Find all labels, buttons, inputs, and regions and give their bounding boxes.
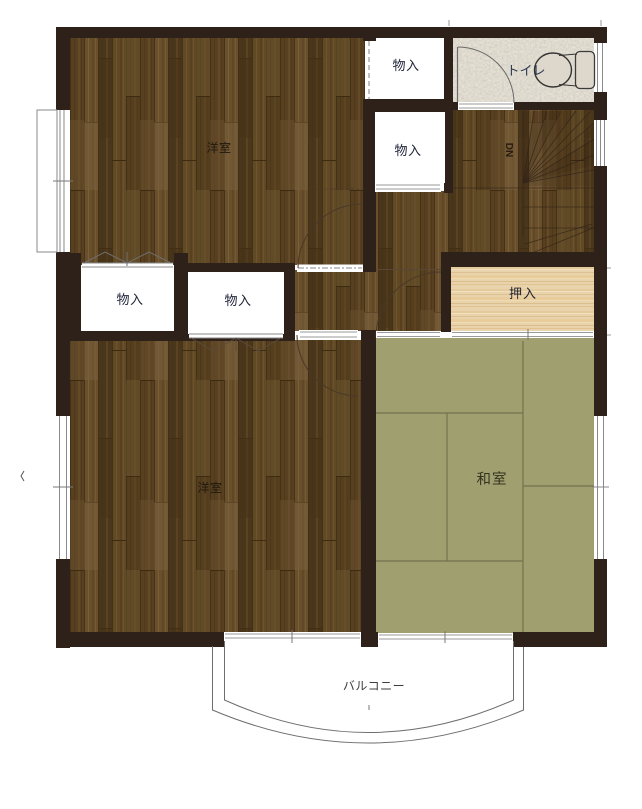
svg-text:物入: 物入 <box>224 293 251 308</box>
svg-text:和室: 和室 <box>477 471 508 488</box>
svg-text:物入: 物入 <box>394 143 421 158</box>
svg-text:洋室: 洋室 <box>206 140 231 155</box>
svg-text:DN: DN <box>503 143 514 157</box>
svg-text:バルコニー: バルコニー <box>343 679 405 693</box>
svg-text:物入: 物入 <box>392 58 419 73</box>
svg-text:洋室: 洋室 <box>197 480 222 495</box>
svg-text:トイレ: トイレ <box>506 63 545 78</box>
svg-text:物入: 物入 <box>116 292 143 307</box>
svg-text:押入: 押入 <box>509 286 537 301</box>
